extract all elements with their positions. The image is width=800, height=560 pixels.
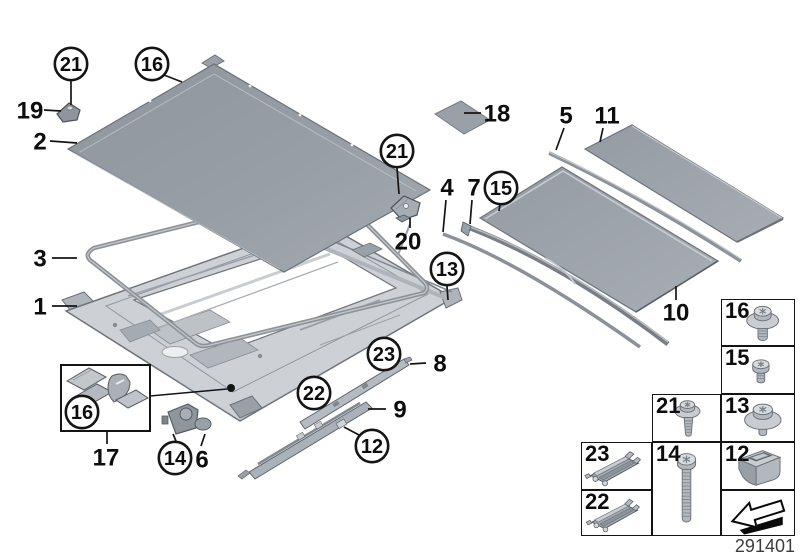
callout-number: 2: [33, 129, 46, 156]
legend-part-number: 23: [585, 442, 609, 466]
callout-number: 17: [93, 445, 120, 472]
direction-arrow-icon: [722, 491, 794, 535]
callout-number: 7: [467, 175, 480, 202]
repair-patch-18: [435, 101, 490, 134]
part-callout-2[interactable]: 2: [33, 129, 77, 156]
callout-number: 11: [594, 103, 619, 130]
leader-line: [556, 128, 564, 150]
legend-cell-23[interactable]: 23: [581, 442, 652, 490]
callout-number: 3: [33, 246, 46, 273]
legend-part-number: 21: [656, 394, 680, 418]
leader-line: [344, 427, 359, 435]
callout-number: 10: [663, 300, 690, 327]
callout-number: 15: [490, 178, 512, 200]
legend-part-number: 16: [725, 299, 749, 323]
legend-part-number: 22: [585, 490, 609, 514]
callout-number: 12: [361, 436, 383, 458]
leader-line: [201, 434, 205, 446]
leader-line: [443, 200, 446, 232]
part-callout-8[interactable]: 8: [410, 351, 447, 378]
legend-cell-14[interactable]: 14: [652, 442, 721, 536]
callout-number: 23: [373, 344, 395, 366]
callout-number: 18: [484, 101, 511, 128]
callout-number: 19: [17, 98, 44, 125]
legend-cell-12[interactable]: 12: [721, 442, 795, 490]
part-callout-19[interactable]: 19: [17, 98, 61, 125]
diagram-id: 291401: [700, 536, 795, 557]
callout-number: 5: [559, 103, 572, 130]
leader-line: [173, 434, 176, 441]
legend-cell-22[interactable]: 22: [581, 490, 652, 536]
part-callout-6[interactable]: 6: [195, 434, 208, 474]
callout-number: 1: [33, 294, 46, 321]
leader-line: [470, 200, 472, 224]
part-callout-21[interactable]: 21: [55, 48, 87, 105]
legend-cell-15[interactable]: 15: [721, 346, 795, 394]
part-callout-12[interactable]: 12: [344, 427, 388, 462]
part-callout-20[interactable]: 20: [395, 218, 422, 256]
part-callout-23[interactable]: 23: [368, 338, 400, 370]
attachment-point-dot: [227, 384, 235, 392]
callout-number: 16: [141, 54, 163, 76]
legend-cell-16[interactable]: 16: [721, 299, 795, 346]
part-callout-14[interactable]: 14: [159, 434, 191, 474]
leader-line: [50, 141, 77, 143]
part-callout-17[interactable]: 17: [93, 432, 120, 472]
legend-part-number: 12: [725, 442, 749, 466]
part-callout-22[interactable]: 22: [298, 377, 330, 409]
part-callout-3[interactable]: 3: [33, 246, 77, 273]
leader-line: [499, 205, 500, 211]
leader-line: [164, 75, 182, 82]
callout-number: 4: [440, 175, 454, 202]
part-callout-7[interactable]: 7: [467, 175, 480, 225]
legend-part-number: 14: [656, 442, 680, 466]
part-callout-16[interactable]: 16: [66, 396, 98, 428]
part-callout-5[interactable]: 5: [556, 103, 573, 151]
leader-line: [447, 286, 448, 300]
callout-number: 8: [433, 351, 446, 378]
part-callout-16[interactable]: 16: [136, 48, 182, 82]
guide-rail-left: [238, 402, 372, 479]
callout-number: 20: [395, 229, 422, 256]
callout-number: 21: [60, 54, 82, 76]
callout-number: 14: [164, 448, 187, 470]
callout-number: 21: [386, 141, 408, 163]
parts-diagram-page: 2116192311851147152120131082322912161714…: [0, 0, 800, 560]
legend-part-number: 13: [725, 394, 749, 418]
legend-cell-13[interactable]: 13: [721, 394, 795, 442]
legend-part-number: 15: [725, 346, 749, 370]
part-callout-4[interactable]: 4: [440, 175, 454, 233]
bracket-19: [57, 103, 80, 122]
leader-line: [410, 363, 426, 364]
callout-number: 16: [71, 402, 93, 424]
part-callout-9[interactable]: 9: [368, 397, 407, 424]
legend-cell-21[interactable]: 21: [652, 394, 721, 442]
callout-number: 13: [436, 259, 458, 281]
leader-line: [44, 110, 61, 111]
callout-number: 9: [393, 397, 406, 424]
callout-number: 6: [195, 447, 208, 474]
legend-cell-arrow[interactable]: [721, 490, 795, 536]
callout-number: 22: [303, 383, 325, 405]
drive-motor: [162, 404, 211, 434]
